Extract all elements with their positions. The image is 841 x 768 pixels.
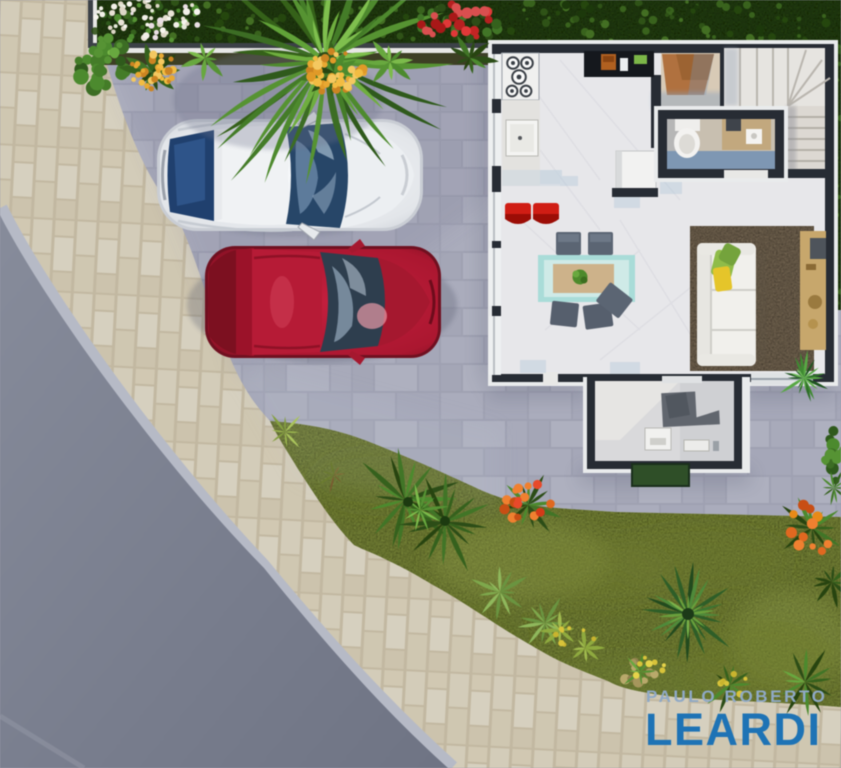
svg-text:LEARDI: LEARDI xyxy=(645,704,822,755)
